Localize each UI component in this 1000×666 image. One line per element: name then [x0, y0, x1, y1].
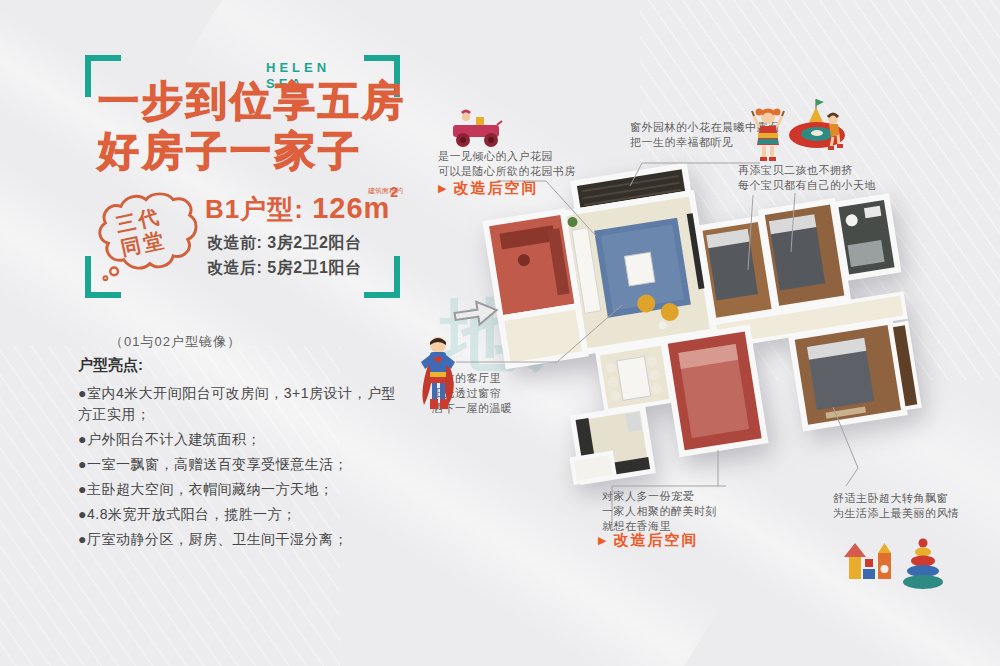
- annotation-line: 舒适主卧超大转角飘窗: [833, 491, 960, 506]
- badge-text: 三代 同堂: [114, 204, 169, 261]
- building-blocks-icon: [842, 539, 896, 589]
- renovated-space-label: ▶改造后空间: [598, 531, 698, 550]
- unit-area: 126m2建筑面积约: [312, 192, 399, 224]
- superman-icon: [416, 335, 462, 417]
- annotation-line: 可以是随心所欲的花园书房: [438, 164, 576, 179]
- highlights-list: ●室内4米大开间阳台可改房间，3+1房设计，户型方正实用； ●户外阳台不计入建筑…: [78, 383, 396, 554]
- entry-step: [572, 453, 615, 483]
- girl-drummer-icon: [751, 105, 785, 167]
- area-note: 建筑面积约: [368, 186, 403, 196]
- highlight-item: ●一室一飘窗，高赠送百变享受惬意生活；: [78, 454, 396, 475]
- annotation-master-room: 舒适主卧超大转角飘窗 为生活添上最美丽的风情: [833, 491, 960, 521]
- renovated-space-label: ▶改造后空间: [438, 179, 538, 198]
- brand-line1: HELEN: [266, 60, 330, 76]
- highlight-item: ●主卧超大空间，衣帽间藏纳一方天地；: [78, 479, 396, 500]
- title-line2: 好房子一家子: [98, 126, 406, 176]
- annotation-line: 每个宝贝都有自己的小天地: [738, 178, 876, 193]
- unit-label: B1户型:: [205, 194, 304, 224]
- arrow-right-icon: [452, 297, 500, 335]
- highlight-item: ●户外阳台不计入建筑面积；: [78, 429, 396, 450]
- stacking-rings-icon: [902, 536, 944, 596]
- highlights-title: 户型亮点:: [78, 356, 143, 375]
- highlight-item: ●室内4米大开间阳台可改房间，3+1房设计，户型方正实用；: [78, 383, 396, 425]
- floor-plan: [464, 150, 928, 498]
- highlight-item: ●4.8米宽开放式阳台，揽胜一方；: [78, 504, 396, 525]
- toy-car-icon: [449, 109, 505, 155]
- annotation-kids-rooms: 再添宝贝二孩也不拥挤 每个宝贝都有自己的小天地: [738, 163, 876, 193]
- annotation-line: 一家人相聚的醉美时刻: [602, 504, 717, 519]
- highlight-item: ●厅室动静分区，厨房、卫生间干湿分离；: [78, 529, 396, 550]
- spec-before: 改造前: 3房2卫2阳台: [207, 233, 361, 254]
- girl-on-spinning-top-icon: [786, 97, 852, 161]
- frame-corner-bottom-right: [364, 256, 400, 298]
- poster: HELEN SEA 一步到位享五房 好房子一家子 三代 同堂 B1户型: 126…: [0, 0, 1000, 666]
- annotation-family-room: 对家人多一份宠爱 一家人相聚的醉美时刻 就想在香海里: [602, 489, 717, 534]
- room-entry-hall: [501, 306, 586, 366]
- mirror-note: （01与02户型镜像）: [110, 333, 241, 351]
- annotation-line: 对家人多一份宠爱: [602, 489, 717, 504]
- page-title: 一步到位享五房 好房子一家子: [98, 76, 406, 176]
- triangle-marker-icon: ▶: [598, 534, 608, 546]
- label-text: 改造后空间: [613, 531, 698, 548]
- three-generations-badge: 三代 同堂: [94, 190, 202, 282]
- title-line1: 一步到位享五房: [98, 76, 406, 126]
- unit-title: B1户型: 126m2建筑面积约: [205, 192, 399, 227]
- annotation-line: 为生活添上最美丽的风情: [833, 506, 960, 521]
- area-value: 126m: [312, 192, 390, 224]
- label-text: 改造后空间: [453, 179, 538, 196]
- spec-after: 改造后: 5房2卫1阳台: [207, 258, 361, 279]
- triangle-marker-icon: ▶: [438, 182, 448, 194]
